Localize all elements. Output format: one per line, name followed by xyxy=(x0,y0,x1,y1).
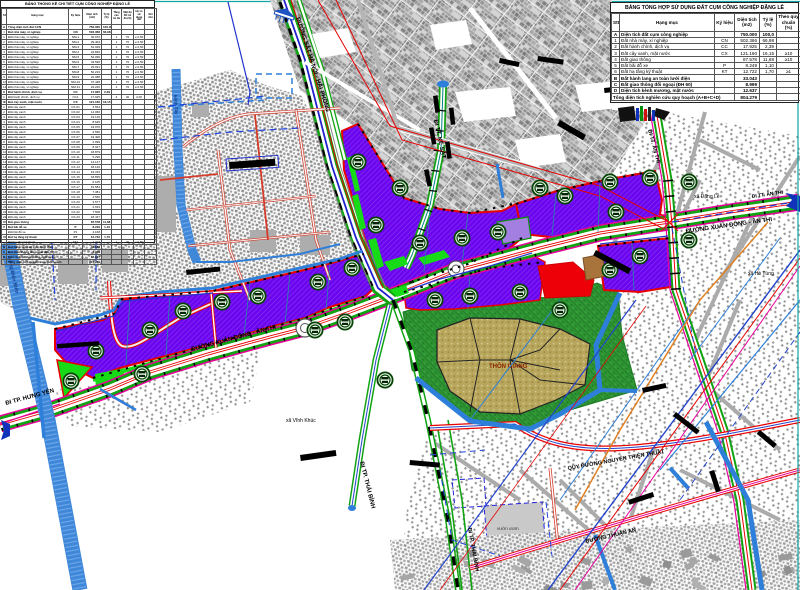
svg-text:xã Đặng Lễ: xã Đặng Lễ xyxy=(694,193,720,200)
svg-text:xã Hồ Tùng: xã Hồ Tùng xyxy=(748,271,774,277)
svg-text:xã Vĩnh Khúc: xã Vĩnh Khúc xyxy=(286,418,316,424)
svg-text:vườn ươm: vườn ươm xyxy=(497,526,519,531)
